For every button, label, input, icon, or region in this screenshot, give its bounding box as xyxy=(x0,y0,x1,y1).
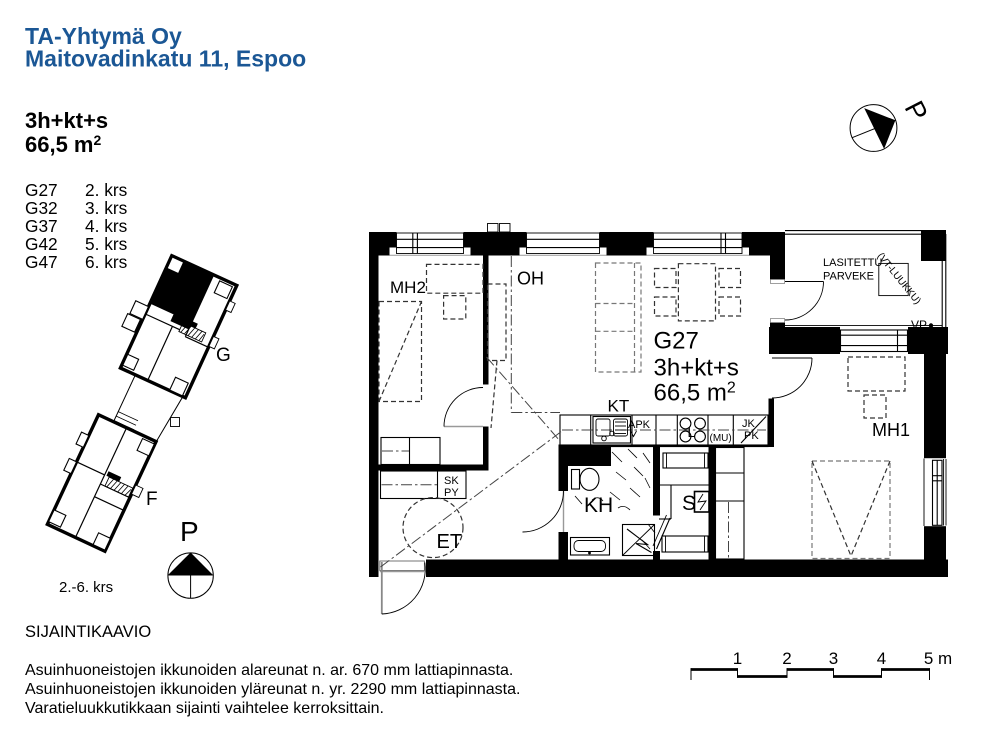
svg-text:3. krs: 3. krs xyxy=(85,198,128,218)
svg-text:VP: VP xyxy=(911,318,927,332)
svg-text:Asuinhuoneistojen ikkunoiden y: Asuinhuoneistojen ikkunoiden yläreunat n… xyxy=(25,681,520,698)
svg-text:G27: G27 xyxy=(25,180,58,200)
svg-text:PY: PY xyxy=(444,487,459,499)
svg-text:G37: G37 xyxy=(25,216,58,236)
svg-text:5. krs: 5. krs xyxy=(85,234,128,254)
svg-text:66,5 m2: 66,5 m2 xyxy=(25,132,102,157)
svg-text:2. krs: 2. krs xyxy=(85,180,128,200)
svg-text:3h+kt+s: 3h+kt+s xyxy=(25,108,108,133)
svg-text:LASITETTU: LASITETTU xyxy=(823,257,882,269)
svg-text:APK: APK xyxy=(628,419,651,431)
svg-text:G42: G42 xyxy=(25,234,58,254)
svg-text:KT: KT xyxy=(608,397,630,416)
svg-text:MH2: MH2 xyxy=(390,278,426,297)
svg-text:L: L xyxy=(688,425,696,440)
svg-text:PARVEKE: PARVEKE xyxy=(823,271,874,283)
svg-text:MH1: MH1 xyxy=(872,420,910,440)
svg-text:Maitovadinkatu 11, Espoo: Maitovadinkatu 11, Espoo xyxy=(25,46,306,72)
svg-text:P: P xyxy=(180,516,199,547)
svg-text:G47: G47 xyxy=(25,252,58,272)
svg-text:3: 3 xyxy=(829,649,838,668)
svg-text:G: G xyxy=(216,345,231,366)
svg-text:PK: PK xyxy=(744,430,759,442)
svg-text:4. krs: 4. krs xyxy=(85,216,128,236)
svg-text:(MU): (MU) xyxy=(710,433,732,444)
svg-text:3h+kt+s: 3h+kt+s xyxy=(654,355,739,382)
svg-text:G32: G32 xyxy=(25,198,58,218)
svg-text:Varatieluukkutikkaan sijainti: Varatieluukkutikkaan sijainti vaihtelee … xyxy=(25,700,384,717)
svg-text:Asuinhuoneistojen ikkunoiden a: Asuinhuoneistojen ikkunoiden alareunat n… xyxy=(25,662,513,679)
svg-text:2: 2 xyxy=(782,649,791,668)
svg-text:SIJAINTIKAAVIO: SIJAINTIKAAVIO xyxy=(25,623,151,641)
svg-text:5 m: 5 m xyxy=(924,649,952,668)
svg-text:KH: KH xyxy=(584,494,613,517)
svg-text:4: 4 xyxy=(877,649,886,668)
svg-text:6. krs: 6. krs xyxy=(85,252,128,272)
svg-text:2.-6. krs: 2.-6. krs xyxy=(59,579,113,596)
svg-text:1: 1 xyxy=(733,649,742,668)
svg-text:OH: OH xyxy=(517,269,544,289)
svg-text:S: S xyxy=(682,492,696,515)
svg-text:ET: ET xyxy=(437,531,463,553)
svg-text:SK: SK xyxy=(444,475,459,487)
svg-text:G27: G27 xyxy=(654,328,699,355)
svg-text:JK: JK xyxy=(742,418,756,430)
svg-text:F: F xyxy=(146,489,158,510)
svg-text:66,5 m2: 66,5 m2 xyxy=(654,380,736,407)
